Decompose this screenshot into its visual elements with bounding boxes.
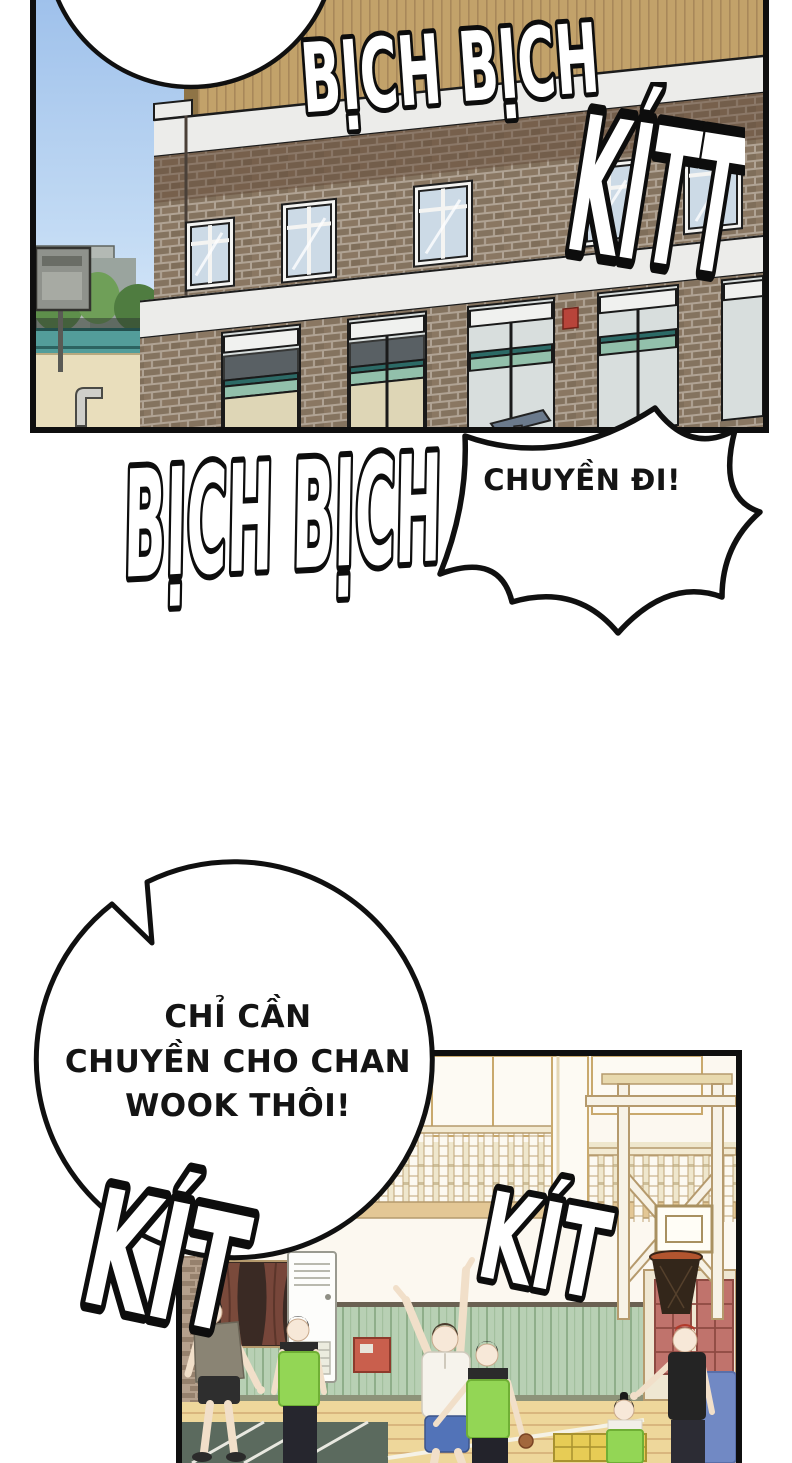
panel-gym-interior xyxy=(176,1050,742,1463)
burst-speech-bubble: CHUYỀN ĐI! xyxy=(420,395,780,650)
comic-page: CHỈ CẦN CHUYỀN CHO CHAN WOOK THÔI! CHUYỀ… xyxy=(0,0,792,1463)
sfx-bich-bich-mid: BỊCH BỊCH xyxy=(118,418,463,658)
gym-illustration xyxy=(182,1056,736,1463)
dialogue-line-1: CHỈ CẦN xyxy=(164,995,311,1035)
fire-cabinet xyxy=(354,1338,390,1372)
school-building-illustration xyxy=(36,0,763,427)
panel-school-exterior xyxy=(30,0,769,433)
sfx-text: BỊCH BỊCH xyxy=(122,422,443,612)
burst-bubble-text: CHUYỀN ĐI! xyxy=(483,460,681,497)
wall-call-box xyxy=(563,307,578,329)
